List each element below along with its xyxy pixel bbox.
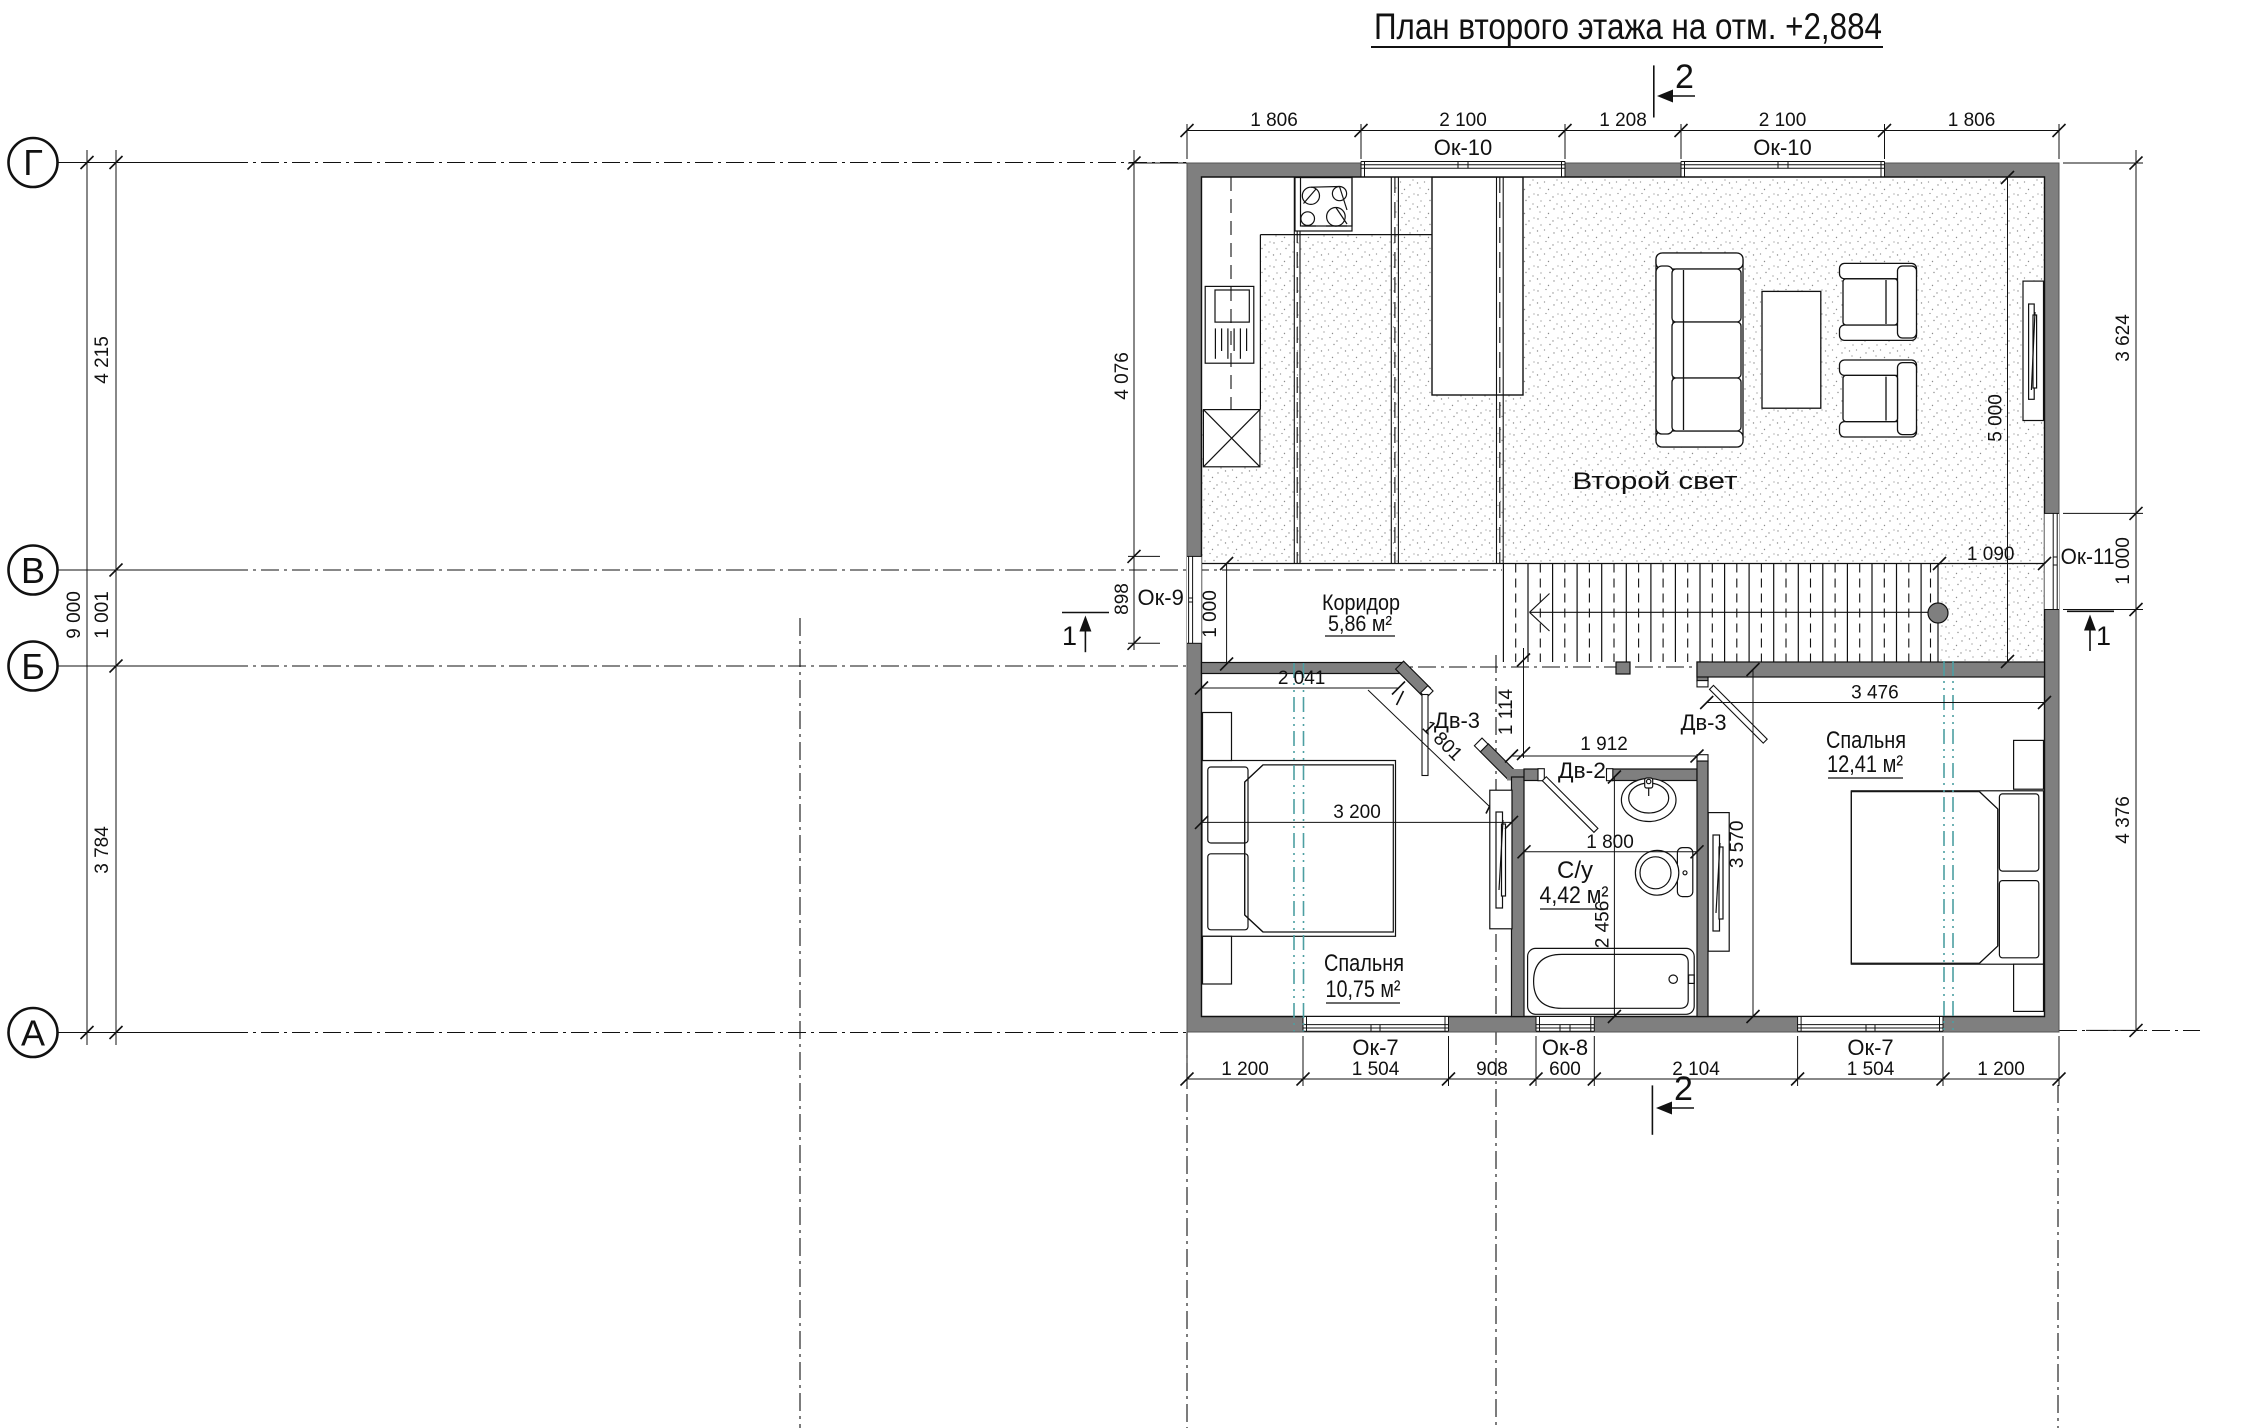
svg-text:10,75 м²: 10,75 м²: [1326, 976, 1401, 1003]
svg-text:12,41 м²: 12,41 м²: [1827, 751, 1903, 778]
svg-text:1 504: 1 504: [1847, 1059, 1895, 1080]
svg-text:1 200: 1 200: [1221, 1059, 1269, 1080]
svg-text:План второго этажа на отм. +2,: План второго этажа на отм. +2,884: [1374, 6, 1882, 47]
svg-text:2 100: 2 100: [1439, 110, 1487, 131]
svg-text:Ок-11: Ок-11: [2061, 544, 2115, 569]
svg-text:3 200: 3 200: [1333, 802, 1381, 823]
svg-text:1 504: 1 504: [1352, 1059, 1400, 1080]
svg-text:3 784: 3 784: [92, 826, 113, 874]
svg-text:2: 2: [1675, 58, 1694, 96]
svg-text:4 076: 4 076: [1112, 352, 1133, 400]
svg-text:1 800: 1 800: [1586, 832, 1634, 853]
svg-text:2 041: 2 041: [1278, 668, 1326, 689]
svg-text:Дв-3: Дв-3: [1434, 708, 1480, 733]
svg-text:Спальня: Спальня: [1826, 727, 1906, 754]
svg-text:1 912: 1 912: [1580, 734, 1628, 755]
svg-text:Дв-2: Дв-2: [1558, 758, 1606, 783]
svg-text:Ок-10: Ок-10: [1434, 135, 1493, 160]
svg-text:898: 898: [1112, 583, 1133, 615]
svg-text:1 200: 1 200: [1977, 1059, 2025, 1080]
svg-text:Г: Г: [23, 142, 43, 183]
svg-text:4 215: 4 215: [92, 336, 113, 384]
svg-text:600: 600: [1549, 1059, 1581, 1080]
svg-text:Ок-7: Ок-7: [1352, 1035, 1398, 1060]
svg-text:5 000: 5 000: [1986, 394, 2007, 442]
svg-text:В: В: [21, 550, 45, 591]
svg-text:3 624: 3 624: [2113, 314, 2134, 362]
svg-text:9 000: 9 000: [64, 591, 85, 639]
svg-text:С/у: С/у: [1557, 857, 1593, 884]
svg-text:2 104: 2 104: [1672, 1059, 1720, 1080]
svg-text:1 806: 1 806: [1948, 110, 1996, 131]
svg-text:1 000: 1 000: [2113, 537, 2134, 585]
svg-text:1: 1: [1062, 621, 1077, 651]
svg-text:Дв-3: Дв-3: [1681, 710, 1727, 735]
svg-text:Б: Б: [21, 646, 45, 687]
svg-text:3 570: 3 570: [1727, 821, 1748, 869]
svg-text:1 114: 1 114: [1496, 689, 1517, 736]
svg-text:Ок-7: Ок-7: [1847, 1035, 1893, 1060]
svg-text:4 376: 4 376: [2113, 796, 2134, 844]
svg-text:1 806: 1 806: [1250, 110, 1298, 131]
svg-text:5,86 м²: 5,86 м²: [1328, 611, 1392, 636]
svg-text:908: 908: [1476, 1059, 1508, 1080]
svg-text:1 001: 1 001: [92, 591, 113, 639]
svg-text:1: 1: [2096, 621, 2111, 651]
svg-text:1 208: 1 208: [1599, 110, 1647, 131]
svg-text:4,42 м²: 4,42 м²: [1540, 882, 1609, 909]
svg-text:1 000: 1 000: [1200, 590, 1221, 638]
svg-text:Ок-8: Ок-8: [1542, 1035, 1588, 1060]
svg-text:Второй свет: Второй свет: [1573, 468, 1738, 495]
svg-text:Ок-9: Ок-9: [1138, 585, 1184, 610]
svg-text:2 100: 2 100: [1759, 110, 1807, 131]
svg-text:А: А: [21, 1013, 45, 1054]
svg-text:3 476: 3 476: [1851, 683, 1899, 704]
svg-text:Спальня: Спальня: [1324, 950, 1404, 977]
svg-text:1 090: 1 090: [1967, 544, 2015, 565]
svg-text:Ок-10: Ок-10: [1753, 135, 1812, 160]
